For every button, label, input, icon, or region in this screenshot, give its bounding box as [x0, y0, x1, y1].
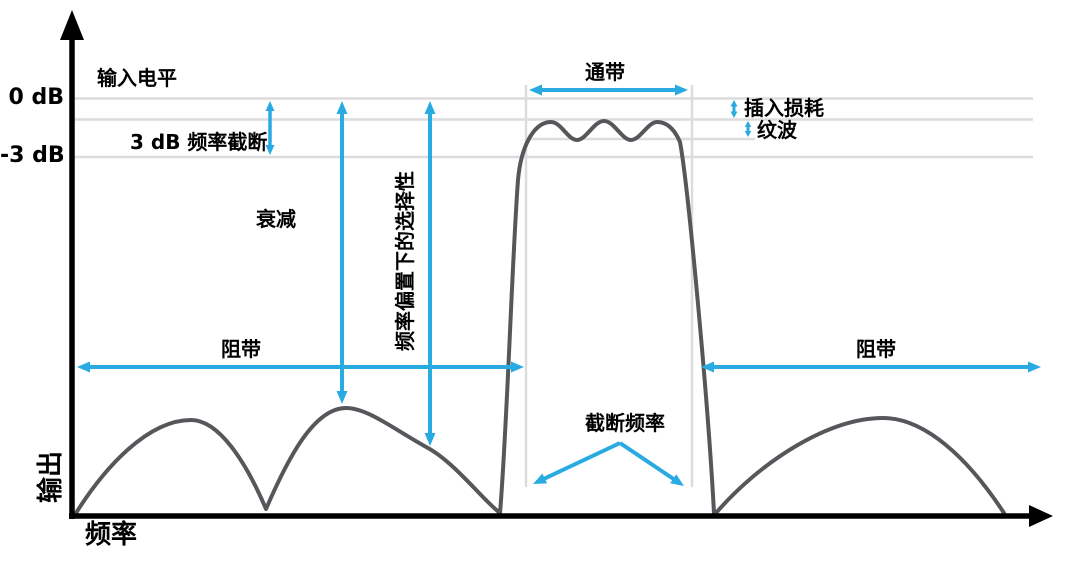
passband-arrow — [529, 85, 688, 96]
insertion-loss-arrow-head-icon — [731, 100, 738, 107]
cutoff-3db-label: 3 dB 频率截断 — [130, 131, 267, 153]
selectivity-label: 频率偏置下的选择性 — [394, 166, 416, 356]
passband-arrow-head-icon — [675, 85, 688, 96]
x-axis-arrowhead-icon — [1029, 505, 1053, 527]
attenuation-label: 衰减 — [256, 208, 296, 230]
ripple-label: 纹波 — [757, 119, 797, 141]
stopband-left-arrow — [77, 362, 524, 373]
input-level-label: 输入电平 — [97, 67, 177, 89]
y-axis-arrowhead-icon — [60, 10, 84, 40]
cutoff-freq-left-pointer-shaft — [543, 443, 620, 479]
y-axis-title: 输出 — [37, 448, 65, 506]
cutoff-frequency-label: 截断频率 — [585, 412, 665, 434]
selectivity-arrow — [425, 101, 436, 446]
attenuation-arrow — [337, 101, 348, 404]
passband-arrow-head-icon — [529, 85, 542, 96]
zero-db-tick-label: 0 dB — [0, 86, 64, 110]
stopband-left-label: 阻带 — [221, 338, 261, 360]
stopband-right-arrow-head-icon — [1028, 362, 1041, 373]
ripple-arrow-head-icon — [745, 121, 752, 127]
x-axis-title: 频率 — [85, 521, 137, 550]
stopband-right-arrow — [701, 362, 1041, 373]
minus3-db-tick-label: -3 dB — [0, 144, 64, 168]
ripple-arrow-head-icon — [745, 131, 752, 137]
attenuation-arrow-head-icon — [337, 391, 348, 404]
filter-response-curve — [76, 121, 1004, 513]
cutoff-3db-arrow-head-icon — [266, 101, 275, 111]
selectivity-arrow-head-icon — [425, 433, 436, 446]
selectivity-arrow-head-icon — [425, 101, 436, 114]
passband-label: 通带 — [585, 61, 625, 83]
ripple-arrow — [745, 121, 752, 137]
stopband-left-arrow-head-icon — [511, 362, 524, 373]
insertion-loss-label: 插入损耗 — [744, 97, 824, 119]
insertion-loss-arrow — [731, 100, 738, 118]
bandpass-filter-diagram: 0 dB -3 dB 输入电平 3 dB 频率截断 通带 插入损耗 纹波 衰减 … — [0, 0, 1080, 569]
cutoff-freq-right-pointer-shaft — [620, 443, 675, 480]
stopband-left-arrow-head-icon — [77, 362, 90, 373]
insertion-loss-arrow-head-icon — [731, 112, 738, 119]
cutoff-freq-right-pointer — [620, 443, 684, 486]
attenuation-arrow-head-icon — [337, 101, 348, 114]
cutoff-freq-left-pointer — [533, 443, 620, 484]
stopband-right-label: 阻带 — [856, 338, 896, 360]
